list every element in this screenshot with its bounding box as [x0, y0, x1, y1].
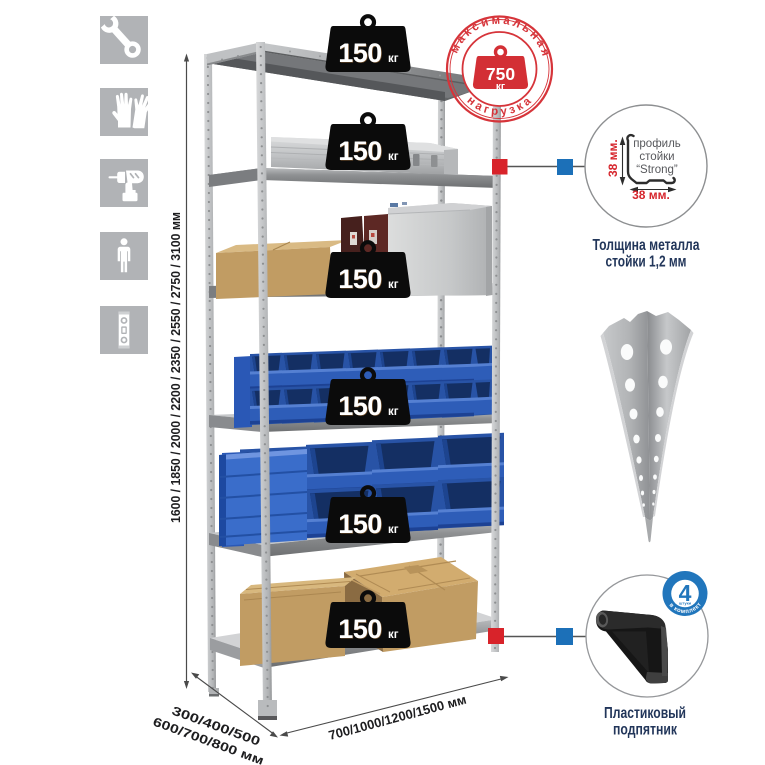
svg-text:38 мм.: 38 мм.	[606, 139, 620, 177]
svg-text:Пластиковый: Пластиковый	[604, 705, 686, 722]
svg-text:штуки: штуки	[679, 600, 692, 605]
svg-text:кг: кг	[388, 151, 399, 163]
svg-text:150: 150	[338, 136, 382, 166]
svg-text:кг: кг	[388, 629, 399, 641]
svg-text:профиль: профиль	[633, 138, 681, 150]
svg-text:подпятник: подпятник	[613, 722, 678, 739]
svg-text:кг: кг	[388, 406, 399, 418]
svg-text:150: 150	[338, 614, 382, 644]
svg-text:“Strong”: “Strong”	[636, 164, 678, 176]
svg-text:150: 150	[338, 509, 382, 539]
svg-text:150: 150	[338, 38, 382, 68]
svg-text:стойки 1,2 мм: стойки 1,2 мм	[606, 254, 687, 271]
svg-text:1600 / 1850 / 2000 / 2200 / 23: 1600 / 1850 / 2000 / 2200 / 2350 / 2550 …	[169, 212, 183, 523]
svg-text:кг: кг	[496, 82, 505, 93]
svg-text:стойки: стойки	[639, 151, 674, 163]
svg-text:Толщина металла: Толщина металла	[593, 237, 700, 254]
svg-text:150: 150	[338, 264, 382, 294]
svg-text:кг: кг	[388, 53, 399, 65]
svg-text:кг: кг	[388, 524, 399, 536]
svg-text:150: 150	[338, 391, 382, 421]
svg-text:кг: кг	[388, 279, 399, 291]
svg-text:38 мм.: 38 мм.	[632, 188, 670, 202]
